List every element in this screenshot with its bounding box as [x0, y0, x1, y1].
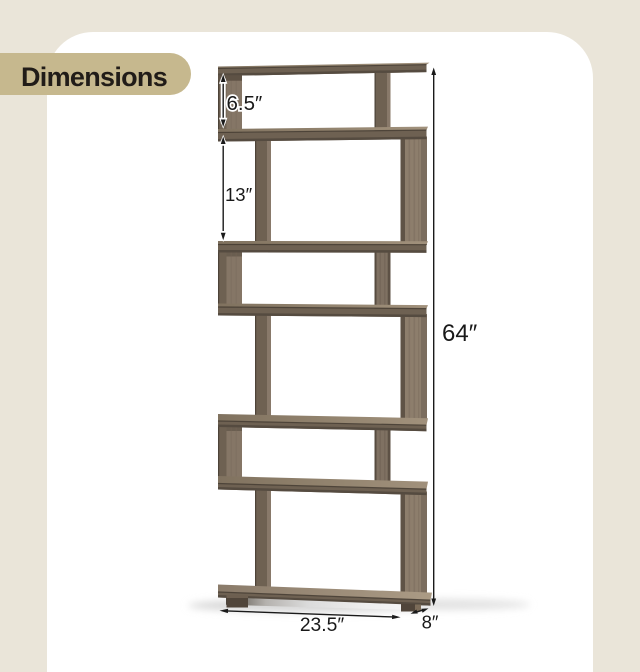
- svg-text:64″: 64″: [442, 320, 478, 347]
- svg-text:6.5″: 6.5″: [227, 92, 263, 115]
- svg-text:13″: 13″: [225, 184, 253, 205]
- svg-text:8″: 8″: [422, 612, 439, 633]
- svg-text:23.5″: 23.5″: [300, 615, 345, 636]
